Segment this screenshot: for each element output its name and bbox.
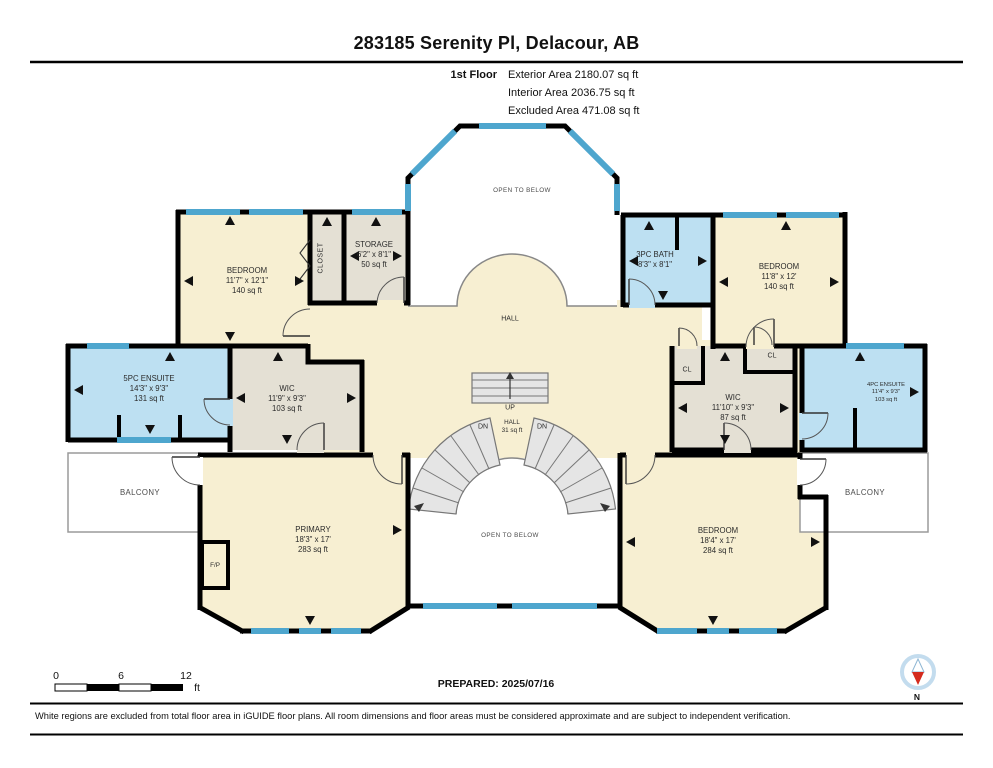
disclaimer-text: White regions are excluded from total fl…	[35, 711, 791, 721]
room-label-wic-right: WIC11'10" x 9'3"87 sq ft	[712, 393, 754, 423]
room-label-bath-3pc: 3PC BATH8'3" x 8'1"	[636, 250, 674, 270]
exterior-area: Exterior Area 2180.07 sq ft	[508, 69, 638, 81]
interior-area: Interior Area 2036.75 sq ft	[508, 87, 635, 99]
room-label-balcony-left: BALCONY	[120, 488, 160, 498]
room-label-bedroom-br: BEDROOM18'4" x 17'284 sq ft	[698, 526, 738, 556]
room-label-open-below-bottom: OPEN TO BELOW	[481, 532, 539, 540]
room-label-cl-left: CL	[683, 367, 692, 376]
prepared-date: PREPARED: 2025/07/16	[396, 678, 596, 690]
floor-plan-page: 283185 Serenity Pl, Delacour, AB 1st Flo…	[0, 0, 993, 768]
scale-tick-0: 0	[53, 670, 59, 682]
stair-up-label: UP	[505, 405, 515, 414]
room-label-balcony-right: BALCONY	[845, 488, 885, 498]
room-label-storage: STORAGE6'2" x 8'1"50 sq ft	[355, 240, 393, 270]
room-label-bedroom-tl: BEDROOM11'7" x 12'1"140 sq ft	[226, 266, 268, 296]
scale-unit: ft	[194, 682, 200, 694]
room-label-hall: HALL	[501, 316, 519, 325]
fireplace-label: F/P	[210, 562, 220, 570]
excluded-area: Excluded Area 471.08 sq ft	[508, 105, 639, 117]
scale-tick-12: 12	[180, 670, 192, 682]
room-label-primary: PRIMARY18'3" x 17'283 sq ft	[295, 525, 331, 555]
page-title: 283185 Serenity Pl, Delacour, AB	[0, 33, 993, 54]
room-label-cl-top: CL	[768, 353, 777, 362]
room-label-open-below-top: OPEN TO BELOW	[493, 187, 551, 195]
scale-tick-6: 6	[118, 670, 124, 682]
room-label-ensuite-5pc: 5PC ENSUITE14'3" x 9'3"131 sq ft	[123, 374, 174, 404]
compass-north-label: N	[914, 692, 920, 702]
scale-bar	[55, 684, 183, 691]
stair-dn-left-label: DN	[478, 424, 488, 433]
room-label-wic-left: WIC11'9" x 9'3"103 sq ft	[268, 384, 306, 414]
stair-dn-right-label: DN	[537, 424, 547, 433]
room-label-bedroom-tr: BEDROOM11'8" x 12'140 sq ft	[759, 262, 799, 292]
room-label-closet: CLOSET	[318, 242, 327, 273]
room-label-ensuite-4pc: 4PC ENSUITE11'4" x 9'3"103 sq ft	[867, 382, 905, 404]
floor-label: 1st Floor	[397, 69, 497, 81]
compass-icon	[902, 656, 934, 688]
room-label-stair-hall: HALL31 sq ft	[502, 419, 523, 435]
